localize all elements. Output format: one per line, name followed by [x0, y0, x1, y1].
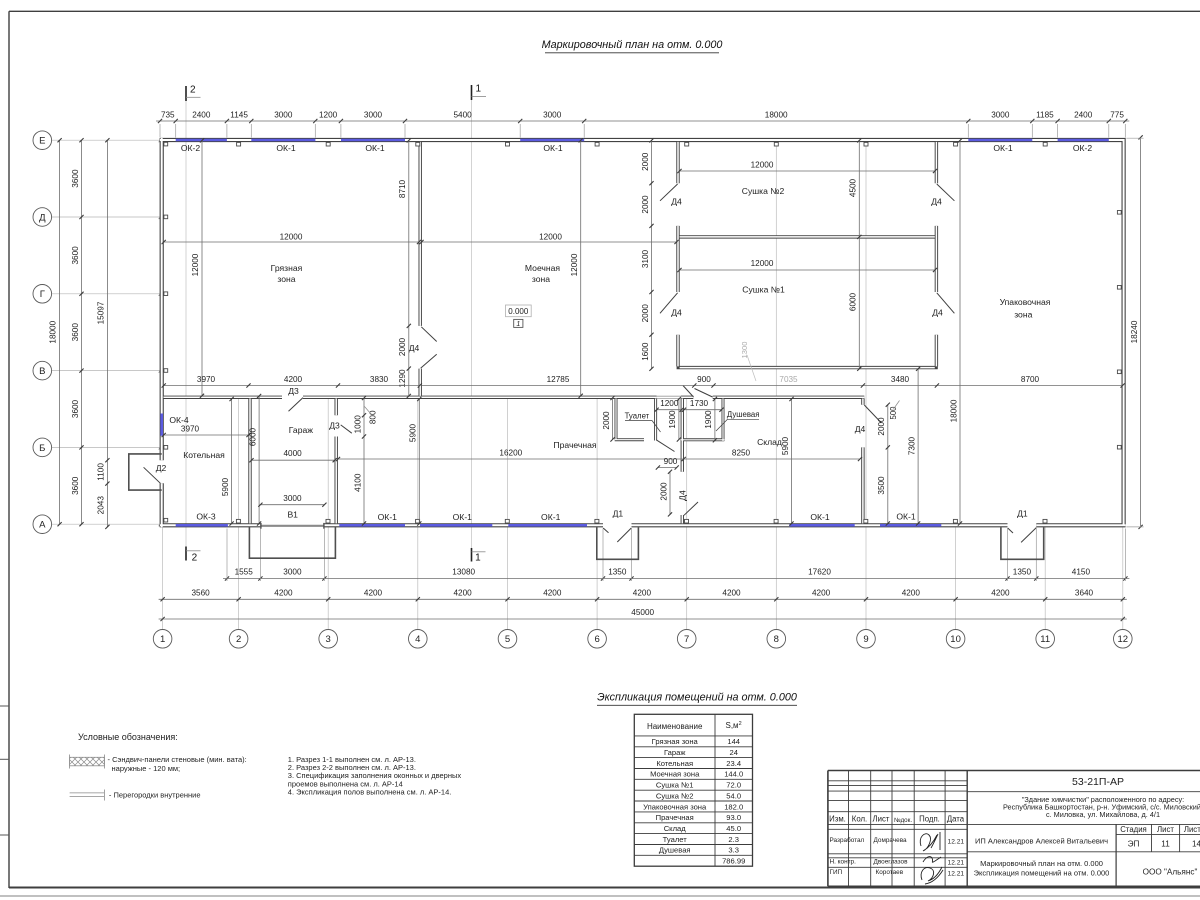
svg-text:- Перегородки внутренние: - Перегородки внутренние [109, 791, 201, 800]
svg-text:24: 24 [729, 748, 737, 757]
svg-text:4150: 4150 [1072, 568, 1091, 577]
svg-text:12.21: 12.21 [948, 839, 965, 846]
svg-text:Д4: Д4 [409, 343, 420, 353]
svg-text:Д4: Д4 [671, 308, 682, 318]
svg-text:Грязная: Грязная [271, 263, 303, 273]
svg-text:5900: 5900 [221, 477, 230, 496]
svg-text:1000: 1000 [353, 415, 362, 434]
svg-text:3000: 3000 [274, 110, 293, 119]
svg-text:4200: 4200 [274, 588, 293, 597]
svg-text:13080: 13080 [452, 568, 475, 577]
svg-text:Котельная: Котельная [656, 759, 693, 768]
svg-text:- Сэндвич-панели стеновые (мин: - Сэндвич-панели стеновые (мин. вата): [108, 755, 247, 764]
svg-text:3000: 3000 [543, 110, 562, 119]
svg-text:ОК-1: ОК-1 [276, 143, 296, 153]
svg-text:ОК-1: ОК-1 [993, 143, 1013, 153]
svg-text:Д3: Д3 [329, 421, 340, 431]
svg-text:182.0: 182.0 [724, 802, 743, 811]
svg-text:3600: 3600 [71, 399, 80, 418]
svg-text:Н. контр.: Н. контр. [830, 858, 857, 865]
svg-text:18000: 18000 [48, 320, 57, 343]
svg-text:Лист: Лист [1157, 825, 1174, 834]
svg-text:2400: 2400 [192, 110, 211, 119]
svg-text:Моечная: Моечная [525, 263, 561, 273]
svg-text:8710: 8710 [398, 179, 407, 198]
svg-text:3500: 3500 [877, 476, 886, 495]
svg-text:3.3: 3.3 [728, 846, 739, 855]
svg-text:1: 1 [476, 84, 482, 95]
svg-text:2.3: 2.3 [728, 835, 739, 844]
svg-text:12000: 12000 [280, 232, 303, 241]
svg-text:Подп.: Подп. [919, 815, 940, 824]
svg-text:12000: 12000 [751, 259, 774, 268]
svg-text:Упаковочная: Упаковочная [1000, 297, 1051, 307]
svg-text:6000: 6000 [849, 292, 858, 311]
svg-text:зона: зона [532, 274, 550, 284]
svg-text:ГИП: ГИП [830, 869, 843, 876]
svg-text:2000: 2000 [641, 152, 650, 171]
svg-text:4200: 4200 [633, 588, 652, 597]
svg-text:4200: 4200 [722, 588, 741, 597]
svg-text:16200: 16200 [499, 448, 522, 457]
svg-text:ОК-2: ОК-2 [181, 143, 201, 153]
svg-text:4200: 4200 [364, 588, 383, 597]
svg-text:А: А [39, 520, 46, 531]
svg-text:12000: 12000 [539, 232, 562, 241]
svg-text:1: 1 [516, 321, 520, 328]
svg-text:12: 12 [1118, 634, 1129, 645]
svg-text:53-21П-АР: 53-21П-АР [1072, 776, 1124, 788]
svg-text:Котельная: Котельная [183, 450, 225, 460]
svg-text:Разработал: Разработал [830, 836, 865, 844]
svg-text:786.99: 786.99 [722, 857, 745, 866]
svg-text:6000: 6000 [248, 427, 257, 446]
svg-text:2000: 2000 [641, 304, 650, 323]
svg-text:Д4: Д4 [931, 197, 942, 207]
svg-text:Кол.: Кол. [852, 815, 867, 824]
svg-text:3640: 3640 [1075, 588, 1094, 597]
svg-text:ОК-1: ОК-1 [543, 143, 563, 153]
svg-text:2000: 2000 [659, 482, 668, 501]
svg-text:Гараж: Гараж [664, 748, 686, 757]
svg-text:3600: 3600 [71, 323, 80, 342]
svg-text:4200: 4200 [543, 588, 562, 597]
svg-text:3: 3 [326, 634, 331, 645]
svg-text:Прачечная: Прачечная [553, 440, 597, 450]
svg-text:1145: 1145 [230, 110, 248, 119]
svg-text:4200: 4200 [453, 588, 472, 597]
svg-text:3000: 3000 [991, 110, 1010, 119]
svg-text:Дата: Дата [947, 815, 965, 824]
svg-text:2000: 2000 [641, 195, 650, 214]
svg-text:Душевая: Душевая [727, 410, 760, 419]
svg-text:45.0: 45.0 [726, 824, 741, 833]
svg-text:12000: 12000 [751, 161, 774, 170]
svg-text:11: 11 [1040, 634, 1050, 645]
svg-text:93.0: 93.0 [726, 813, 741, 822]
svg-text:Д4: Д4 [678, 490, 688, 501]
svg-text:1600: 1600 [641, 342, 650, 361]
svg-text:10: 10 [950, 634, 961, 645]
svg-text:ОК-2: ОК-2 [1073, 143, 1093, 153]
svg-text:Г: Г [40, 289, 45, 300]
svg-text:8250: 8250 [732, 448, 751, 457]
svg-text:Экспликация помещений на отм.: Экспликация помещений на отм. 0.000 [974, 869, 1110, 878]
svg-text:5: 5 [505, 634, 510, 645]
svg-text:4. Экспликация полов выполнена: 4. Экспликация полов выполнена см. л. АР… [288, 787, 452, 796]
svg-text:54.0: 54.0 [726, 791, 741, 800]
svg-text:Домрачева: Домрачева [874, 837, 908, 844]
svg-text:1730: 1730 [690, 399, 709, 408]
svg-text:11: 11 [1161, 840, 1170, 849]
svg-text:500: 500 [889, 406, 898, 420]
svg-text:72.0: 72.0 [726, 781, 741, 790]
svg-text:3000: 3000 [283, 494, 302, 503]
svg-text:4000: 4000 [283, 449, 302, 458]
svg-text:Сушка №2: Сушка №2 [656, 791, 694, 800]
svg-text:Д3: Д3 [288, 386, 299, 396]
svg-text:1350: 1350 [608, 568, 627, 577]
svg-text:ОК-1: ОК-1 [453, 512, 473, 522]
svg-text:900: 900 [664, 457, 678, 466]
svg-text:Д2: Д2 [156, 463, 167, 473]
svg-text:Д1: Д1 [1017, 509, 1028, 519]
svg-text:наружные - 120 мм;: наружные - 120 мм; [112, 764, 181, 773]
svg-text:2000: 2000 [877, 417, 886, 436]
svg-text:3830: 3830 [370, 375, 389, 384]
svg-text:3970: 3970 [197, 375, 216, 384]
svg-text:ОК-1: ОК-1 [378, 512, 398, 522]
svg-text:2000: 2000 [602, 411, 611, 430]
svg-text:2000: 2000 [398, 337, 407, 356]
svg-text:18240: 18240 [1130, 320, 1139, 343]
svg-text:1900: 1900 [668, 410, 677, 429]
svg-text:5900: 5900 [781, 436, 790, 455]
svg-text:7035: 7035 [779, 375, 798, 384]
svg-text:Прачечная: Прачечная [656, 813, 694, 822]
svg-text:Склад: Склад [664, 824, 687, 833]
svg-text:Изм.: Изм. [829, 815, 846, 824]
svg-text:900: 900 [697, 375, 711, 384]
svg-text:3000: 3000 [364, 110, 383, 119]
svg-text:ОК-1: ОК-1 [365, 143, 385, 153]
svg-text:2: 2 [192, 553, 198, 564]
svg-text:Грязная зона: Грязная зона [652, 737, 699, 746]
svg-text:2400: 2400 [1074, 110, 1093, 119]
svg-text:2: 2 [190, 85, 196, 96]
svg-text:18000: 18000 [765, 110, 788, 119]
svg-text:Д4: Д4 [855, 424, 866, 434]
svg-text:6: 6 [594, 634, 599, 645]
svg-text:Д4: Д4 [932, 308, 943, 318]
svg-text:ОК-1: ОК-1 [541, 512, 561, 522]
svg-text:Склад: Склад [757, 437, 782, 447]
svg-text:775: 775 [1110, 110, 1124, 119]
svg-text:зона: зона [1014, 310, 1032, 320]
svg-text:Е: Е [39, 136, 45, 147]
svg-text:8700: 8700 [1021, 375, 1040, 384]
svg-text:3100: 3100 [641, 249, 650, 268]
svg-text:1290: 1290 [398, 369, 407, 388]
svg-text:Моечная зона: Моечная зона [650, 770, 700, 779]
svg-text:23.4: 23.4 [726, 759, 741, 768]
svg-text:3000: 3000 [283, 568, 302, 577]
svg-text:3970: 3970 [181, 425, 200, 434]
svg-text:Листов: Листов [1184, 825, 1200, 834]
svg-text:12000: 12000 [191, 253, 200, 276]
svg-text:Туалет: Туалет [663, 835, 688, 844]
svg-text:18000: 18000 [949, 399, 958, 422]
svg-text:14: 14 [1192, 840, 1200, 849]
svg-text:ОК-3: ОК-3 [196, 512, 216, 522]
svg-text:3600: 3600 [71, 476, 80, 495]
svg-text:1350: 1350 [1013, 568, 1032, 577]
svg-text:12000: 12000 [570, 253, 579, 276]
svg-text:1: 1 [160, 634, 165, 645]
svg-text:12.21: 12.21 [948, 859, 965, 866]
svg-text:Наименование: Наименование [647, 722, 703, 731]
svg-text:1200: 1200 [319, 110, 338, 119]
svg-text:0.000: 0.000 [508, 307, 529, 316]
svg-text:4200: 4200 [902, 588, 921, 597]
svg-text:Душевая: Душевая [659, 846, 691, 855]
svg-text:Д1: Д1 [613, 509, 624, 519]
svg-text:4: 4 [415, 634, 420, 645]
svg-text:1: 1 [475, 553, 481, 564]
svg-text:Б: Б [39, 443, 45, 454]
svg-text:Маркировочный план на отм. 0.0: Маркировочный план на отм. 0.000 [542, 39, 723, 51]
svg-text:В: В [39, 366, 45, 377]
svg-text:4500: 4500 [849, 178, 858, 197]
svg-text:ИП Александров Алексей Виталье: ИП Александров Алексей Витальевич [975, 836, 1108, 845]
svg-text:3600: 3600 [71, 169, 80, 188]
svg-text:ОК-1: ОК-1 [810, 512, 830, 522]
svg-text:4200: 4200 [991, 588, 1010, 597]
svg-text:12.21: 12.21 [948, 870, 965, 877]
svg-text:Туалет: Туалет [625, 411, 650, 420]
svg-text:Двоеглазов: Двоеглазов [874, 858, 909, 865]
svg-text:12785: 12785 [547, 375, 570, 384]
svg-text:с. Миловка, ул. Михайлова, д.: с. Миловка, ул. Михайлова, д. 4/1 [1046, 810, 1160, 819]
svg-text:15097: 15097 [97, 301, 106, 324]
svg-text:144: 144 [727, 737, 740, 746]
svg-text:1555: 1555 [235, 568, 254, 577]
svg-text:9: 9 [863, 634, 868, 645]
svg-text:1900: 1900 [704, 410, 713, 429]
svg-text:Сушка №2: Сушка №2 [742, 186, 785, 196]
svg-text:1200: 1200 [660, 399, 679, 408]
svg-text:4200: 4200 [812, 588, 831, 597]
svg-text:45000: 45000 [631, 608, 654, 617]
svg-text:ООО "Альянс": ООО "Альянс" [1143, 868, 1198, 877]
svg-text:735: 735 [161, 110, 175, 119]
svg-text:3480: 3480 [891, 375, 910, 384]
svg-text:Гараж: Гараж [289, 425, 314, 435]
svg-text:Сушка №1: Сушка №1 [742, 285, 785, 295]
svg-text:4200: 4200 [284, 375, 303, 384]
svg-text:ОК-1: ОК-1 [896, 511, 916, 521]
svg-text:№док.: №док. [894, 817, 912, 824]
svg-text:3560: 3560 [191, 588, 210, 597]
svg-text:3600: 3600 [71, 246, 80, 265]
svg-text:2043: 2043 [97, 496, 106, 515]
svg-text:5400: 5400 [453, 110, 472, 119]
svg-text:7300: 7300 [907, 436, 916, 455]
svg-text:ЭП: ЭП [1128, 840, 1140, 849]
svg-text:Стадия: Стадия [1120, 825, 1147, 834]
svg-text:1185: 1185 [1036, 110, 1054, 119]
svg-text:7: 7 [684, 634, 689, 645]
svg-text:Экспликация помещений на отм.: Экспликация помещений на отм. 0.000 [597, 692, 797, 704]
svg-text:1100: 1100 [97, 463, 106, 481]
svg-text:Коротаев: Коротаев [876, 869, 904, 876]
svg-text:Д: Д [39, 212, 46, 223]
svg-text:Лист: Лист [873, 815, 890, 824]
svg-text:Упаковочная зона: Упаковочная зона [643, 802, 707, 811]
svg-text:Маркировочный план на отм. 0.0: Маркировочный план на отм. 0.000 [980, 859, 1103, 868]
svg-text:Условные обозначения:: Условные обозначения: [78, 732, 178, 742]
svg-text:5900: 5900 [409, 423, 418, 442]
svg-text:В1: В1 [287, 509, 298, 519]
svg-text:Д4: Д4 [671, 197, 682, 207]
svg-text:8: 8 [774, 634, 779, 645]
svg-text:зона: зона [277, 274, 295, 284]
svg-text:4100: 4100 [353, 473, 362, 492]
svg-text:144.0: 144.0 [724, 770, 743, 779]
svg-text:2: 2 [236, 634, 241, 645]
svg-text:17620: 17620 [808, 568, 831, 577]
svg-text:Сушка №1: Сушка №1 [656, 781, 694, 790]
